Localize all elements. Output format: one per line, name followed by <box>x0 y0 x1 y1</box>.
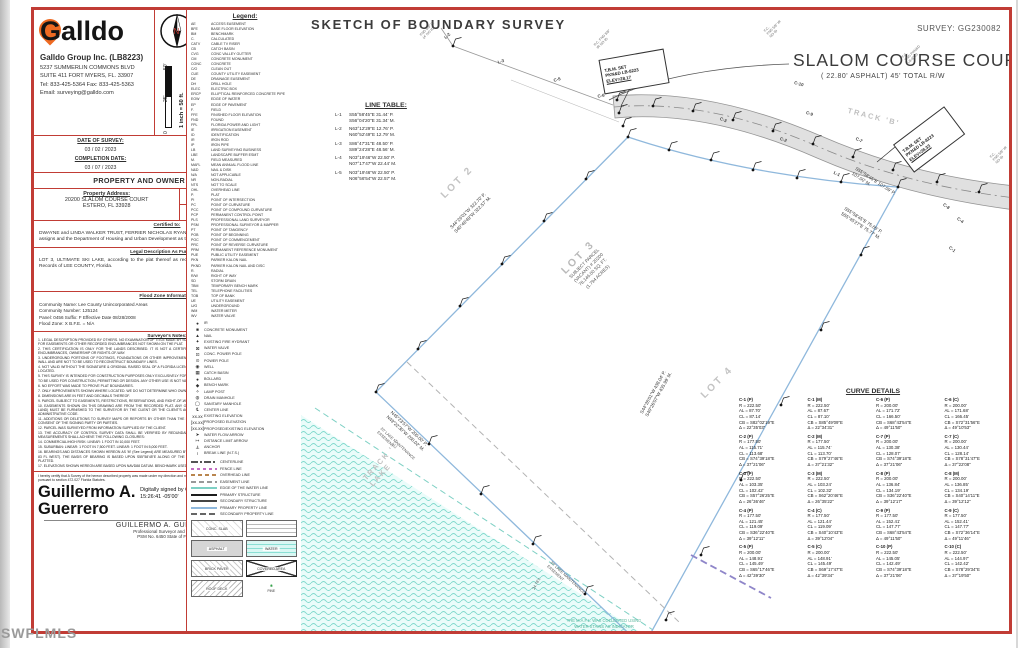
line-values: N03°19'46"W 22.50' P.N07°17'47"W 22.44' … <box>349 155 396 167</box>
line-plat-value: N63°12'29"E 12.76' P. <box>349 126 394 131</box>
curve-cell: C-4 (P) R = 177.50' AL = 121.45' CL = 11… <box>739 508 802 542</box>
line-values: S86°47'31"E 48.50' P.S89°24'28"E 48.56' … <box>349 141 395 153</box>
sheet-title: SKETCH OF BOUNDARY SURVEY <box>311 17 566 32</box>
line-values: N03°19'46"W 22.50' P.N06°56'54"W 22.57' … <box>349 170 396 182</box>
curve-delta: Δ = 49°11'50" <box>876 425 939 431</box>
legend-linetype-sample <box>191 487 217 489</box>
survey-sheet-frame: Galldo Galldo Group Inc. (LB8223) 5237 S… <box>31 7 1012 634</box>
paper-edge <box>1016 0 1018 648</box>
curve-delta: Δ = 37°21'06" <box>876 462 939 468</box>
curve-cell: C-10 (P) R = 222.50' AL = 145.05' CL = 1… <box>876 544 939 578</box>
legend-symbol-label: CONC. POWER POLE <box>204 352 242 357</box>
legend-symbol-icon: ≀ <box>191 451 204 457</box>
curve-delta: Δ = 37°19'50" <box>945 573 1008 579</box>
line-table-row: L-5 N03°19'46"W 22.50' P.N06°56'54"W 22.… <box>335 170 437 182</box>
date-of-survey-label: DATE OF SURVEY: <box>77 138 123 144</box>
legend-symbol-label: CONCRETE MONUMENT <box>204 328 247 333</box>
legend-linetype-label: SECONDARY STRUCTURE <box>220 499 267 503</box>
svg-text:N: N <box>174 27 180 36</box>
line-table-rows: L-1 S55°58'45"E 31.44' P.S56°04'20"E 31.… <box>335 112 437 182</box>
legend-linetype-sample <box>191 507 217 509</box>
legend-linetype-sample <box>191 461 217 463</box>
curve-cell: C-7 (P) R = 200.00' AL = 130.38' CL = 12… <box>876 434 939 468</box>
curve-cell: C-1 (P) R = 222.50' AL = 87.70' CL = 87.… <box>739 397 802 431</box>
legend-swatch: ROOF DECK <box>191 580 243 597</box>
line-id: L-4 <box>335 155 349 167</box>
legend-symbol-label: PROPOSED ELEVATION <box>204 420 246 425</box>
legend-symbol-label: IR <box>204 321 208 326</box>
legend-abbr: WV <box>191 314 211 319</box>
legend-symbol-label: BENCH MARK <box>204 383 229 388</box>
curve-delta: Δ = 26°36'46" <box>739 499 802 505</box>
line-id: L-1 <box>335 112 349 124</box>
firm-phone: Tel: 833-425-5364 Fax: 833-425-5363 <box>40 82 152 88</box>
curve-cell: C-7 (C) R = 200.00' AL = 130.44' CL = 12… <box>945 434 1008 468</box>
curve-cell: C-3 (P) R = 222.50' AL = 103.35' CL = 10… <box>739 471 802 505</box>
curve-delta: Δ = 37°21'06" <box>876 573 939 579</box>
legend-swatch-label: CONC. SLAB <box>204 527 230 531</box>
completion-date-value: 03 / 07 / 2023 <box>34 163 167 172</box>
curve-delta: Δ = 37°21'32" <box>808 462 871 468</box>
legend-symbol-label: PROPOSED/EXISTING ELEVATION <box>204 427 264 432</box>
title-block-panel: Galldo Galldo Group Inc. (LB8223) 5237 S… <box>34 10 301 631</box>
curve-cell: C-3 (M) R = 222.50' AL = 103.24' CL = 10… <box>808 471 871 505</box>
curve-delta: Δ = 22°34'31" <box>808 425 871 431</box>
legend-linetype-sample <box>191 468 217 470</box>
legend-linetype-label: EASEMENT LINE <box>220 480 249 484</box>
line-table-row: L-2 N63°12'29"E 12.76' P.N60°52'49"E 12.… <box>335 126 437 138</box>
curve-cell: C-8 (M) R = 200.00' AL = 136.85' CL = 13… <box>945 471 1008 505</box>
line-plat-value: N03°19'46"W 22.50' P. <box>349 170 395 175</box>
street-name-label: SLALOM COURSE COURT <box>793 50 1009 71</box>
legend-swatch-label: BRICK PAVER <box>203 567 231 571</box>
legend-symbol-label: EXISTING ELEVATION <box>204 414 242 419</box>
survey-number: SURVEY: GG230082 <box>917 24 1001 33</box>
legend-symbol-label: LAMP POST <box>204 390 225 395</box>
curve-delta: Δ = 22°35'03" <box>739 425 802 431</box>
legend-swatch <box>246 520 298 537</box>
curve-cell: C-1 (M) R = 222.50' AL = 87.67' CL = 87.… <box>808 397 871 431</box>
legend-symbols: ● IR ■ CONCRETE MONUMENT ▲ NAIL ✦ <box>191 321 299 457</box>
completion-date-label: COMPLETION DATE: <box>75 156 127 162</box>
legend-symbol-label: ANCHOR <box>204 445 220 450</box>
line-plat-value: S86°47'31"E 48.50' P. <box>349 141 393 146</box>
legend-swatch-label: WATER <box>263 547 280 551</box>
curve-cell: C-9 (P) R = 177.50' AL = 152.41' CL = 14… <box>876 508 939 542</box>
mls-watermark: SWFLMLS <box>1 625 77 641</box>
legend-linetype-sample <box>191 513 217 515</box>
legend-panel: Legend: AE ACCESS EASEMENT BFE BASE FLOO… <box>186 10 301 631</box>
legend-symbol-label: DRAIN MANHOLE <box>204 396 235 401</box>
curve-cell: C-6 (C) R = 200.00' AL = 171.68' CL = 16… <box>945 397 1008 431</box>
legend-abbr-row: WV WATER VALVE <box>191 314 299 319</box>
curve-details-grid: C-1 (P) R = 222.50' AL = 87.70' CL = 87.… <box>739 397 1007 578</box>
legend-linetypes: CENTERLINE FENCE LINE OVERHEAD LINE <box>191 459 299 518</box>
legend-symbol-label: SANITARY MANHOLE <box>204 402 241 407</box>
tree-label: PINE <box>268 590 275 593</box>
curve-details-table: CURVE DETAILS C-1 (P) R = 222.50' AL = 8… <box>739 388 1007 578</box>
line-values: S55°58'45"E 31.44' P.S56°04'20"E 31.34' … <box>349 112 395 124</box>
scanned-survey-document: { "header": {"title": "SKETCH OF BOUNDAR… <box>0 0 1024 648</box>
line-table-row: L-4 N03°19'46"W 22.50' P.N07°17'47"W 22.… <box>335 155 437 167</box>
line-measured-value: N60°52'49"E 12.79' M. <box>349 132 395 137</box>
line-id: L-2 <box>335 126 349 138</box>
tree-glyph: ✱ <box>270 584 273 588</box>
legend-linetype-row: SECONDARY PROPERTY LINE <box>191 511 299 518</box>
date-of-survey-value: 03 / 02 / 2023 <box>34 145 167 154</box>
scale-tick-25: 25' <box>163 95 169 102</box>
legend-linetype-label: SECONDARY PROPERTY LINE <box>220 512 274 516</box>
legend-linetype-label: OVERHEAD LINE <box>220 473 250 477</box>
firm-name: Galldo Group Inc. (LB8223) <box>40 53 152 62</box>
legend-symbol-label: NAIL <box>204 334 212 339</box>
legend-swatch-label: ROOF DECK <box>204 587 229 591</box>
legend-swatch-label: COVERED AREA <box>255 567 287 571</box>
firm-address2: SUITE 411 FORT MYERS, FL. 33907 <box>40 73 152 79</box>
curve-delta: Δ = 37°22'08" <box>945 462 1008 468</box>
legend-linetype-sample <box>191 474 217 476</box>
legend-linetype-label: PRIMARY STRUCTURE <box>220 493 260 497</box>
legend-swatch: BRICK PAVER <box>191 560 243 577</box>
legend-linetype-label: FENCE LINE <box>220 467 242 471</box>
legend-symbol-label: DISTANCE LIMIT ARROW <box>204 439 248 444</box>
curve-cell: C-8 (P) R = 200.00' AL = 136.84' CL = 13… <box>876 471 939 505</box>
curve-cell: C-4 (C) R = 177.50' AL = 121.44' CL = 11… <box>808 508 871 542</box>
legend-swatch: CONC. SLAB <box>191 520 243 537</box>
legend-swatches: CONC. SLAB ASPHALT WATER <box>191 520 299 597</box>
firm-email: Email: surveying@galldo.com <box>40 90 152 96</box>
curve-cell: C-5 (C) R = 200.00' AL = 148.91' CL = 14… <box>808 544 871 578</box>
legend-title: Legend: <box>191 13 299 20</box>
scan-edge-shadow <box>0 0 10 648</box>
legend-symbol-label: CENTER LINE <box>204 408 228 413</box>
mafl-note: THE M.A.F.L. WAS COLLECTED USING WATER S… <box>539 618 669 629</box>
curve-details-title: CURVE DETAILS <box>739 388 1007 395</box>
curve-delta: Δ = 26°35'22" <box>808 499 871 505</box>
street-row-label: ( 22.80' ASPHALT) 45' TOTAL R/W <box>821 73 945 80</box>
firm-logo-block: Galldo Galldo Group Inc. (LB8223) 5237 S… <box>34 10 154 135</box>
line-measured-value: S56°04'20"E 31.34' M. <box>349 118 395 123</box>
legend-swatch-label: ASPHALT <box>207 547 227 551</box>
curve-delta: Δ = 42°39'30" <box>739 573 802 579</box>
line-measured-value: N06°56'54"W 22.57' M. <box>349 176 396 181</box>
legend-swatch: COVERED AREA <box>246 560 298 577</box>
line-id: L-3 <box>335 141 349 153</box>
line-measured-value: S89°24'28"E 48.56' M. <box>349 147 395 152</box>
legend-symbol-label: WATER VALVE <box>204 346 229 351</box>
legend-symbol-label: CATCH BASIN <box>204 371 229 376</box>
firm-address1: 5237 SUMMERLIN COMMONS BLVD <box>40 65 152 71</box>
lake-water-hatch <box>301 415 646 631</box>
legend-swatch: WATER <box>246 540 298 557</box>
line-table-row: L-3 S86°47'31"E 48.50' P.S89°24'28"E 48.… <box>335 141 437 153</box>
survey-drawing-area: SKETCH OF BOUNDARY SURVEY SURVEY: GG2300… <box>301 10 1009 631</box>
line-table-row: L-1 S55°58'45"E 31.44' P.S56°04'20"E 31.… <box>335 112 437 124</box>
line-id: L-5 <box>335 170 349 182</box>
signature-script: Guillermo A. Guerrero <box>38 484 140 519</box>
curve-delta: Δ = 49°11'50" <box>876 536 939 542</box>
legend-abbreviations: AE ACCESS EASEMENT BFE BASE FLOOR ELEVAT… <box>191 22 299 319</box>
legend-linetype-label: CENTERLINE <box>220 460 243 464</box>
tree-icon: ✱PINE <box>266 585 277 593</box>
signature-line1: Guillermo A. <box>38 484 140 501</box>
curve-delta: Δ = 39°12'12" <box>945 499 1008 505</box>
legend-symbol-label: BOLLARD <box>204 377 221 382</box>
curve-cell: C-2 (M) R = 177.50' AL = 115.74' CL = 11… <box>808 434 871 468</box>
property-address-cell: Property Address: 20200 SLALOM COURSE CO… <box>34 189 180 220</box>
line-table-title: LINE TABLE: <box>335 102 437 109</box>
line-table: LINE TABLE: L-1 S55°58'45"E 31.44' P.S56… <box>335 102 437 184</box>
legend-symbol-label: WATER FLOW ARROW <box>204 433 244 438</box>
curve-delta: Δ = 39°12'11" <box>739 536 802 542</box>
legend-linetype-label: EDGE OF THE WATER LINE <box>220 486 268 490</box>
signature-line2: Guerrero <box>38 501 140 518</box>
legend-linetype-sample <box>191 494 217 496</box>
legend-linetype-label: PRIMARY PROPERTY LINE <box>220 506 267 510</box>
legend-linetype-sample <box>191 500 217 502</box>
legend-tree-icons: ◉OAK ★PALM ✱PINE <box>246 580 298 597</box>
curve-cell: C-5 (P) R = 200.00' AL = 148.91' CL = 14… <box>739 544 802 578</box>
legend-symbol-label: POWER POLE <box>204 359 229 364</box>
line-plat-value: N03°19'46"W 22.50' P. <box>349 155 395 160</box>
legend-symbol-label: EXISTING FIRE HYDRANT <box>204 340 249 345</box>
curve-cell: C-2 (P) R = 177.50' AL = 115.71' CL = 11… <box>739 434 802 468</box>
legend-symbol-label: BREAK LINE (N.T.S.) <box>204 451 239 456</box>
legend-symbol-row: ≀ BREAK LINE (N.T.S.) <box>191 451 299 457</box>
firm-logo-text: Galldo <box>40 16 152 47</box>
scale-tick-50: 50' <box>163 63 169 70</box>
line-plat-value: S55°58'45"E 31.44' P. <box>349 112 393 117</box>
curve-delta: Δ = 49°10'53" <box>945 425 1008 431</box>
line-values: N63°12'29"E 12.76' P.N60°52'49"E 12.79' … <box>349 126 395 138</box>
legend-linetype-sample <box>191 481 217 483</box>
legend-swatch: ASPHALT <box>191 540 243 557</box>
curve-cell: C-9 (C) R = 177.50' AL = 152.41' CL = 14… <box>945 508 1008 542</box>
curve-delta: Δ = 37°21'06" <box>739 462 802 468</box>
line-measured-value: N07°17'47"W 22.44' M. <box>349 161 396 166</box>
curve-delta: Δ = 39°12'04" <box>808 536 871 542</box>
curve-delta: Δ = 42°39'34" <box>808 573 871 579</box>
scale-tick-0: 0 <box>163 131 169 134</box>
curve-delta: Δ = 49°11'46" <box>945 536 1008 542</box>
right-of-way-extension-line <box>441 28 613 105</box>
property-address-line2: ESTERO, FL 33928 <box>36 203 177 209</box>
curve-cell: C-6 (P) R = 200.00' AL = 171.72' CL = 16… <box>876 397 939 431</box>
curve-cell: C-10 (C) R = 222.50' AL = 144.97' CL = 1… <box>945 544 1008 578</box>
scale-ratio-text: 1 inch = 50 ft. <box>179 92 185 128</box>
curve-delta: Δ = 39°12'17" <box>876 499 939 505</box>
legend-symbol-label: WELL <box>204 365 214 370</box>
legend-abbr-desc: WATER VALVE <box>211 314 235 319</box>
